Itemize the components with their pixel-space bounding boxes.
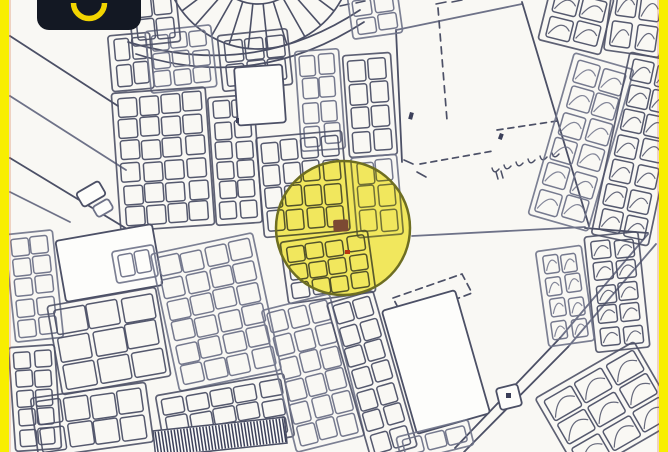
location-marker (333, 219, 349, 232)
stripe-edge-tint (9, 0, 11, 452)
map-block-plain (234, 64, 286, 125)
stripe-edge-tint (657, 0, 659, 452)
left-yellow-stripe (0, 0, 9, 452)
map-speck (506, 393, 511, 398)
brand-logo (37, 0, 141, 30)
logo-card (37, 0, 141, 30)
map-speck (236, 118, 239, 123)
right-yellow-stripe (659, 0, 668, 452)
listing-map-screenshot (0, 0, 668, 452)
city-sketch-map[interactable] (0, 0, 668, 452)
